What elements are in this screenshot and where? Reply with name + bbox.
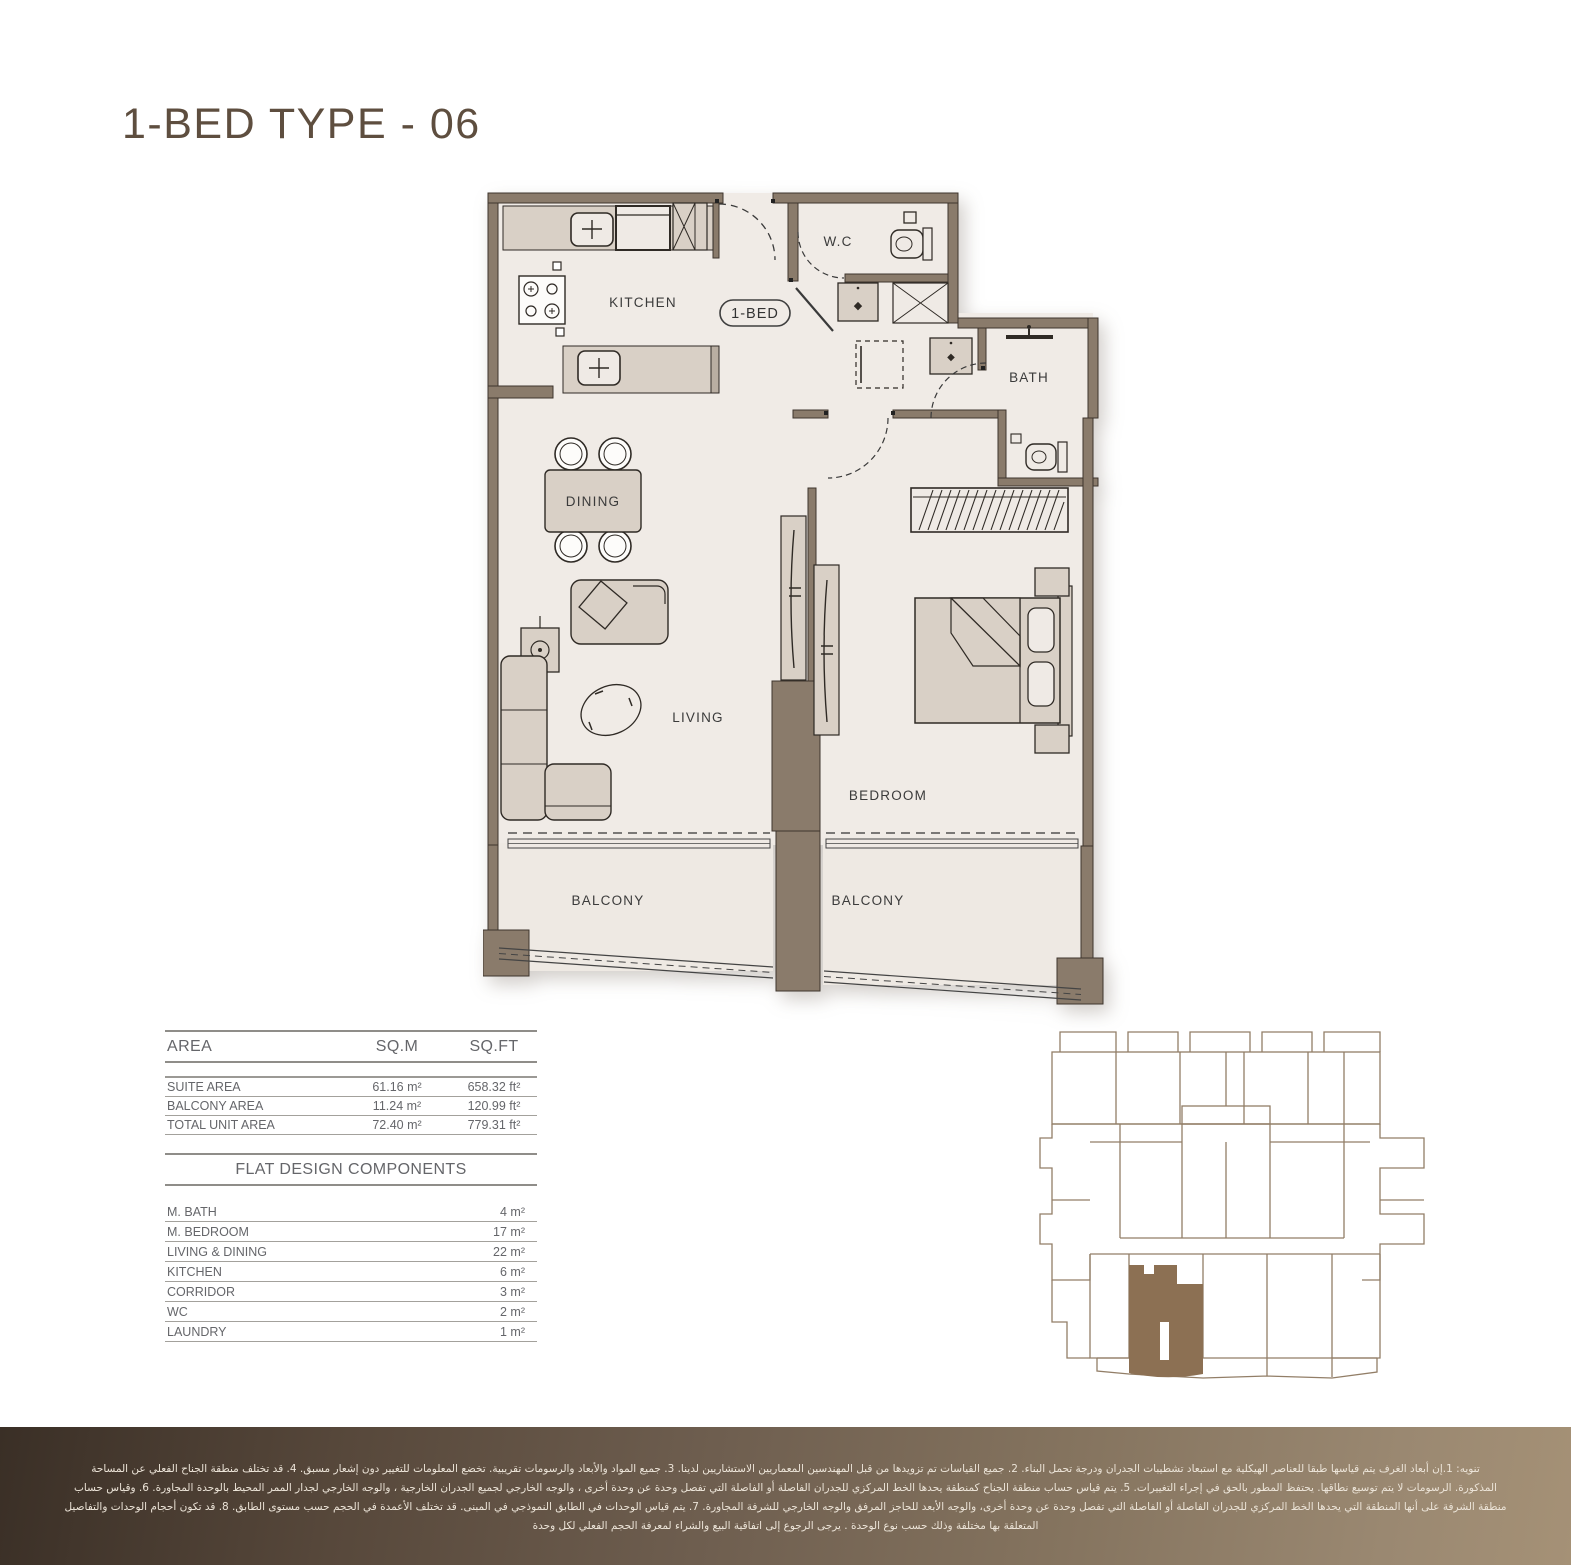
oven-icon xyxy=(616,206,670,250)
building-key-plan xyxy=(1032,1022,1432,1389)
table-row: BALCONY AREA 11.24 m² 120.99 ft² xyxy=(165,1097,537,1116)
unit-badge: 1-BED xyxy=(720,300,790,326)
room-label-kitchen: KITCHEN xyxy=(609,295,677,310)
kitchen-sink-icon xyxy=(571,213,613,246)
svg-text:1-BED: 1-BED xyxy=(731,306,779,322)
col-sqm: SQ.M xyxy=(345,1038,449,1056)
nightstand xyxy=(1035,568,1069,596)
components-title: FLAT DESIGN COMPONENTS xyxy=(165,1153,537,1186)
room-label-balcony-right: BALCONY xyxy=(832,893,905,908)
components-table: FLAT DESIGN COMPONENTS M. BATH 4 m² M. B… xyxy=(165,1153,537,1342)
tall-cabinet-icon xyxy=(673,203,707,250)
col-area: AREA xyxy=(167,1038,345,1056)
table-row: KITCHEN 6 m² xyxy=(165,1262,537,1282)
kitchen-sink2-icon xyxy=(578,351,620,385)
wardrobe-icon xyxy=(911,488,1068,532)
pillow xyxy=(1028,608,1054,652)
key-plan-svg xyxy=(1032,1022,1432,1384)
svg-text:◆: ◆ xyxy=(947,352,955,363)
room-label-bath: BATH xyxy=(1009,370,1049,385)
shaft-icon xyxy=(893,283,948,323)
disclaimer-line: المذكورة. الرسومات لا يتم توسيع نطاقها. … xyxy=(74,1479,1497,1498)
brochure-page: { "page": { "title": "1-BED TYPE - 06" }… xyxy=(0,0,1571,1565)
table-row: LAUNDRY 1 m² xyxy=(165,1322,537,1342)
table-row: SUITE AREA 61.16 m² 658.32 ft² xyxy=(165,1078,537,1097)
pillow xyxy=(1028,662,1054,706)
area-table: AREA SQ.M SQ.FT SUITE AREA 61.16 m² 658.… xyxy=(165,1030,537,1135)
key-plan-highlighted-unit xyxy=(1129,1265,1203,1377)
loveseat-icon xyxy=(571,580,668,644)
counter-outlet xyxy=(553,262,561,270)
svg-text:◆: ◆ xyxy=(854,300,863,312)
table-row: TOTAL UNIT AREA 72.40 m² 779.31 ft² xyxy=(165,1116,537,1135)
tables-section: AREA SQ.M SQ.FT SUITE AREA 61.16 m² 658.… xyxy=(165,1030,537,1342)
table-spacer xyxy=(165,1186,537,1202)
page-title: 1-BED TYPE - 06 xyxy=(122,100,481,149)
table-row: M. BATH 4 m² xyxy=(165,1202,537,1222)
room-label-bedroom: BEDROOM xyxy=(849,788,927,803)
area-table-header: AREA SQ.M SQ.FT xyxy=(165,1030,537,1063)
footer-bar: تنويه: 1.إن أبعاد الغرف يتم قياسها طبقا … xyxy=(0,1427,1571,1565)
disclaimer-line: تنويه: 1.إن أبعاد الغرف يتم قياسها طبقا … xyxy=(91,1460,1480,1479)
room-label-balcony-left: BALCONY xyxy=(572,893,645,908)
floor-plan: ◆ ◆ xyxy=(483,188,1115,1028)
wc-sink-icon xyxy=(904,212,916,223)
table-spacer xyxy=(165,1063,537,1078)
disclaimer-line: المتعلقة بها مختلفة وذلك حسب نوع الوحدة … xyxy=(533,1517,1039,1536)
key-plan-outline xyxy=(1040,1032,1424,1378)
room-label-wc: W.C xyxy=(823,234,852,249)
floor-plan-svg: ◆ ◆ xyxy=(483,188,1115,1023)
table-row: M. BEDROOM 17 m² xyxy=(165,1222,537,1242)
nightstand xyxy=(1035,725,1069,753)
table-row: LIVING & DINING 22 m² xyxy=(165,1242,537,1262)
room-label-dining: DINING xyxy=(566,494,620,509)
footer-disclaimer: تنويه: 1.إن أبعاد الغرف يتم قياسها طبقا … xyxy=(0,1427,1571,1565)
stove-icon xyxy=(519,276,565,324)
table-row: WC 2 m² xyxy=(165,1302,537,1322)
table-row: CORRIDOR 3 m² xyxy=(165,1282,537,1302)
col-sqft: SQ.FT xyxy=(449,1038,539,1056)
disclaimer-line: منطقة الشرفة على أنها المنطقة التي يحدها… xyxy=(64,1498,1506,1517)
counter-outlet xyxy=(556,328,564,336)
bath-sink-icon: ◆ xyxy=(930,338,972,374)
room-label-living: LIVING xyxy=(672,710,723,725)
